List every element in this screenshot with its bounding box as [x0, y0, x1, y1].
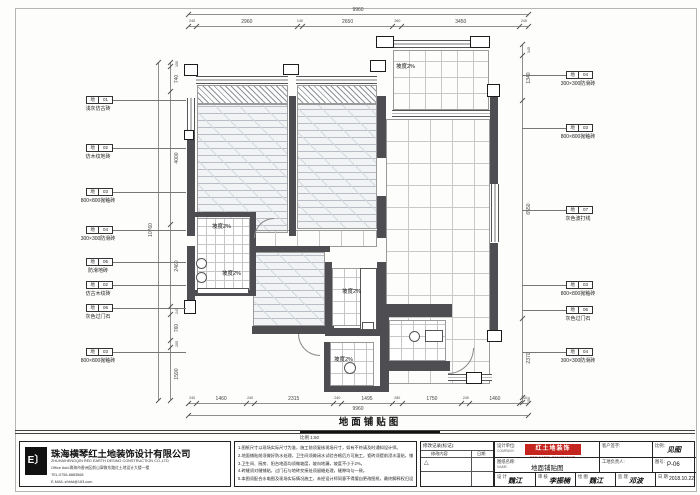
callout-tag: 地05	[86, 258, 113, 266]
scale-label: 比例:	[655, 443, 665, 449]
drawing-number-label: 图号:	[655, 459, 665, 465]
callout-tag: 地06	[86, 304, 113, 312]
wall	[194, 212, 252, 217]
column	[184, 130, 194, 140]
company-block: E〕 珠海横琴红土地装饰设计有限公司 ZHUHAIHENGQIN RED EAR…	[19, 441, 231, 487]
wall	[187, 246, 195, 306]
dimension-label: 240	[189, 396, 195, 400]
dimension-label: 280	[394, 396, 400, 400]
red-earth-logo: 红土地装饰	[525, 444, 581, 455]
callout-leader	[112, 308, 186, 309]
callout-material-label: 仿古木纹砖	[85, 290, 110, 297]
company-address: Office Add:珠海市香洲区前山翠微东路红土地设计大楼一楼	[51, 466, 149, 471]
callout-code: 地	[87, 282, 99, 288]
dimension-label: 2650	[342, 19, 353, 25]
callout-code: 地	[87, 145, 99, 151]
callout-leader	[112, 192, 186, 193]
signature-label: 日 期	[658, 474, 668, 480]
wall	[380, 361, 450, 371]
callout-tag: 地03	[566, 281, 593, 289]
note-line: 2.地面铺贴前须做好防水处理，卫生间须做闭水试验合格后方可施工，瓷砖须提前浸水湿…	[238, 452, 413, 460]
callout-code: 地	[567, 125, 579, 131]
callout-code: 地	[567, 207, 579, 213]
bay-window-hatch	[297, 85, 377, 104]
callout-tag: 地06	[566, 306, 593, 314]
callout-number: 06	[579, 307, 592, 313]
callout-material-label: 800×800抛釉砖	[81, 357, 116, 364]
column	[376, 36, 394, 48]
signature-cell: 日 期2018.10.22	[655, 472, 696, 487]
callout-tag: 地03	[566, 124, 593, 132]
drawing-name-cell: 图纸名称: NAME: 地面铺贴图	[495, 457, 599, 472]
title-block: 设计单位: COMPANY: 红土地装饰 RED EARTH DECORATIO…	[494, 441, 695, 487]
dimension-label: 260	[394, 19, 400, 23]
signature-label: 审 核	[538, 474, 548, 480]
dimension-label: 4000	[174, 153, 180, 164]
dimension-label: 9960	[352, 7, 363, 13]
wall	[252, 326, 334, 334]
callout-material-label: 800×800抛釉砖	[561, 290, 596, 297]
client-sign-label: 客户签字:	[602, 443, 620, 449]
separator-line	[15, 433, 695, 434]
callout-number: 03	[99, 349, 112, 355]
drawing-sheet: 坡度2%坡度2%坡度2%坡度2%坡度2%99602402960140265026…	[0, 0, 700, 495]
dimension-label: 1590	[174, 368, 180, 379]
callout-number: 06	[99, 305, 112, 311]
dimension-label: 1750	[426, 396, 437, 402]
wall	[252, 246, 330, 252]
callout-leader	[112, 230, 186, 231]
dimension-label: 2960	[241, 19, 252, 25]
signature-value: 邓波	[629, 476, 643, 486]
column	[184, 300, 196, 314]
callout-tag: 地02	[86, 281, 113, 289]
dimension-label: 1460	[216, 396, 227, 402]
callout-code: 地	[87, 97, 99, 103]
wall	[380, 304, 452, 317]
callout-leader	[522, 352, 566, 353]
signature-value: 魏江	[508, 476, 522, 486]
company-email: E-MAIL:zhhtd@163.com	[51, 480, 92, 484]
callout-number: 01	[99, 97, 112, 103]
wall	[377, 196, 386, 238]
callout-leader	[112, 262, 186, 263]
callout-material-label: 灰色过门石	[85, 313, 110, 320]
drawing-number-value: P-06	[667, 462, 680, 468]
callout-material-label: 300×300防滑砖	[561, 357, 596, 364]
column	[487, 330, 502, 342]
wall	[324, 342, 330, 392]
dimension-label: 2315	[288, 396, 299, 402]
drawing-name-sub: NAME:	[497, 465, 508, 469]
callout-number: 03	[99, 189, 112, 195]
dimension-label: 2370	[526, 352, 532, 363]
notes-block: 1.图纸尺寸以现场实际尺寸为准，施工前须复核现场尺寸，如有不符请及时通知设计师。…	[234, 441, 417, 487]
callout-number: 04	[579, 72, 592, 78]
drawing-number-cell: 图号: P-06	[652, 457, 696, 472]
signature-cell: 绘 图魏江	[575, 472, 615, 487]
callout-tag: 地04	[86, 226, 113, 234]
callout-code: 地	[87, 305, 99, 311]
slope-annotation: 坡度2%	[222, 269, 241, 277]
slope-annotation: 坡度2%	[334, 355, 353, 363]
revision-line	[421, 457, 493, 458]
plan-title-block: 地面铺贴图 比例 1:50	[300, 412, 440, 441]
dimension-line	[188, 403, 528, 404]
column	[466, 372, 482, 384]
bay-window-hatch	[197, 85, 288, 104]
note-line: 3.卫生间、厨房、阳台地面均须做坡度，坡向地漏，坡度不小于2%。	[238, 460, 413, 468]
callout-number: 04	[579, 349, 592, 355]
column	[470, 36, 490, 48]
callout-material-label: 灰色过门石	[565, 315, 590, 322]
window	[392, 110, 490, 117]
dimension-label: 1340	[526, 72, 532, 83]
dimension-label: 240	[521, 19, 527, 23]
company-name-en: ZHUHAIHENGQIN RED EARTH DESING CONSTRUCT…	[51, 459, 169, 463]
callout-material-label: 浅灰仿古砖	[85, 105, 110, 112]
fixture-circle	[344, 362, 356, 374]
fixture	[362, 322, 374, 330]
revision-line	[421, 471, 493, 472]
window	[491, 184, 499, 242]
callout-code: 地	[87, 227, 99, 233]
signature-cell: 设 计魏江	[495, 472, 535, 487]
signature-cell: 审 核李振楠	[535, 472, 575, 487]
dimension-line	[170, 62, 171, 400]
revision-mark: △	[424, 459, 429, 466]
fixture-circle	[196, 258, 207, 269]
callout-leader	[522, 285, 566, 286]
dimension-label: 140	[297, 19, 303, 23]
door-arc	[298, 334, 320, 356]
slope-annotation: 坡度2%	[212, 222, 231, 230]
callout-tag: 地04	[566, 71, 593, 79]
dimension-line	[158, 62, 159, 400]
callout-number: 03	[579, 282, 592, 288]
callout-leader	[112, 100, 186, 101]
site-manager-label: 工地负责人:	[602, 459, 625, 465]
callout-material-label: 800×800抛釉砖	[561, 133, 596, 140]
dimension-line	[188, 26, 528, 27]
site-manager-cell: 工地负责人:	[599, 457, 652, 472]
callout-tag: 地02	[86, 144, 113, 152]
dimension-line	[188, 14, 528, 15]
note-line: 1.图纸尺寸以现场实际尺寸为准，施工前须复核现场尺寸，如有不符请及时通知设计师。	[238, 444, 413, 452]
signature-label: 绘 图	[578, 474, 588, 480]
callout-material-label: 灰色波打线	[565, 215, 590, 222]
wall	[325, 262, 332, 334]
balcony-tile-floor	[393, 50, 489, 110]
fixture	[360, 268, 377, 330]
window	[296, 76, 377, 84]
callout-code: 地	[87, 189, 99, 195]
bedroom-wood-floor	[253, 252, 325, 326]
window	[394, 40, 470, 48]
dimension-label: 240	[463, 396, 469, 400]
callout-code: 地	[567, 349, 579, 355]
company-tel: TEL:0756-8883568	[51, 473, 84, 477]
slope-annotation: 坡度2%	[342, 287, 361, 295]
fixture	[197, 288, 249, 294]
dimension-label: 240	[247, 396, 253, 400]
signature-label: 设 计	[497, 474, 507, 480]
callout-leader	[522, 210, 566, 211]
scale-cell: 比例: 见图	[652, 442, 696, 457]
callout-code: 地	[567, 282, 579, 288]
callout-number: 02	[99, 145, 112, 151]
callout-tag: 地04	[566, 348, 593, 356]
revision-header: 修改记录(标记):	[423, 443, 454, 449]
slope-annotation: 坡度2%	[396, 62, 415, 70]
wall	[289, 96, 296, 236]
revision-line	[471, 450, 472, 486]
plan-scale: 比例 1:50	[300, 435, 440, 441]
callout-leader	[112, 352, 186, 353]
dimension-label: 150	[175, 61, 179, 67]
callout-tag: 地03	[86, 348, 113, 356]
bedroom-wood-floor	[297, 104, 377, 229]
signature-label: 监 理	[618, 474, 628, 480]
separator-line	[15, 430, 695, 431]
column	[184, 64, 198, 76]
callout-material-label: 300×300防滑砖	[81, 235, 116, 242]
callout-leader	[522, 310, 566, 311]
callout-number: 07	[579, 207, 592, 213]
fixture-circle	[196, 272, 207, 283]
callout-leader	[112, 148, 186, 149]
design-unit-cell: 设计单位: COMPANY: 红土地装饰 RED EARTH DECORATIO…	[495, 442, 599, 457]
column	[283, 64, 299, 75]
callout-tag: 地03	[86, 188, 113, 196]
signature-value: 魏江	[589, 476, 603, 486]
dimension-label: 1495	[361, 396, 372, 402]
callout-code: 地	[87, 349, 99, 355]
window	[196, 76, 288, 84]
revision-block: 修改记录(标记): 修改内容 日期 △	[420, 441, 494, 487]
callout-number: 05	[99, 259, 112, 265]
callout-leader	[522, 75, 566, 76]
callout-material-label: 仿木纹地砖	[85, 153, 110, 160]
signature-value: 李振楠	[549, 476, 570, 486]
callout-number: 04	[99, 227, 112, 233]
fixture	[425, 330, 443, 342]
callout-material-label: 防滑地砖	[88, 267, 108, 274]
wall	[250, 212, 256, 296]
wall	[187, 140, 195, 236]
callout-material-label: 800×800抛釉砖	[81, 197, 116, 204]
dimension-label: 205	[175, 341, 179, 347]
dimension-label: 240	[334, 396, 340, 400]
scale-value: 见图	[667, 445, 681, 455]
callout-code: 地	[567, 72, 579, 78]
wall	[377, 96, 386, 158]
company-logo: E〕	[25, 447, 47, 475]
callout-leader	[112, 285, 186, 286]
dimension-label: 150	[527, 397, 531, 403]
callout-tag: 地07	[566, 206, 593, 214]
dimension-label: 760	[174, 323, 180, 331]
design-unit-sub: COMPANY:	[497, 449, 515, 453]
column	[487, 84, 500, 97]
dimension-label: 740	[174, 75, 180, 83]
wall	[380, 317, 389, 392]
wall	[490, 243, 498, 333]
callout-number: 03	[579, 125, 592, 131]
callout-code: 地	[567, 307, 579, 313]
signature-cell: 监 理邓波	[615, 472, 655, 487]
callout-code: 地	[87, 259, 99, 265]
client-sign-cell: 客户签字:	[599, 442, 652, 457]
fixture-circle	[409, 331, 420, 342]
callout-tag: 地01	[86, 96, 113, 104]
company-name: 珠海横琴红土地装饰设计有限公司	[51, 446, 190, 460]
dimension-label: 240	[189, 19, 195, 23]
signature-value: 2018.10.22	[669, 476, 694, 482]
drawing-name-value: 地面铺贴图	[531, 462, 564, 472]
plan-title: 地面铺贴图	[339, 417, 402, 428]
callout-material-label: 300×300防滑砖	[561, 80, 596, 87]
dimension-label: 1460	[489, 396, 500, 402]
dimension-label: 3450	[455, 19, 466, 25]
callout-leader	[522, 128, 566, 129]
callout-number: 02	[99, 282, 112, 288]
dimension-label: 345	[527, 47, 531, 53]
column	[370, 60, 386, 72]
note-line: 4.砖缝须对缝铺贴，过门石与地砖交接处须留缝处理，缝隙均匀一致。	[238, 467, 413, 475]
note-line: 5.本图须配合水电图及现场实际情况施工，未经设计师同意不得擅自更改图纸，最终解释…	[238, 475, 413, 483]
wall	[490, 96, 498, 184]
wall	[324, 386, 380, 392]
